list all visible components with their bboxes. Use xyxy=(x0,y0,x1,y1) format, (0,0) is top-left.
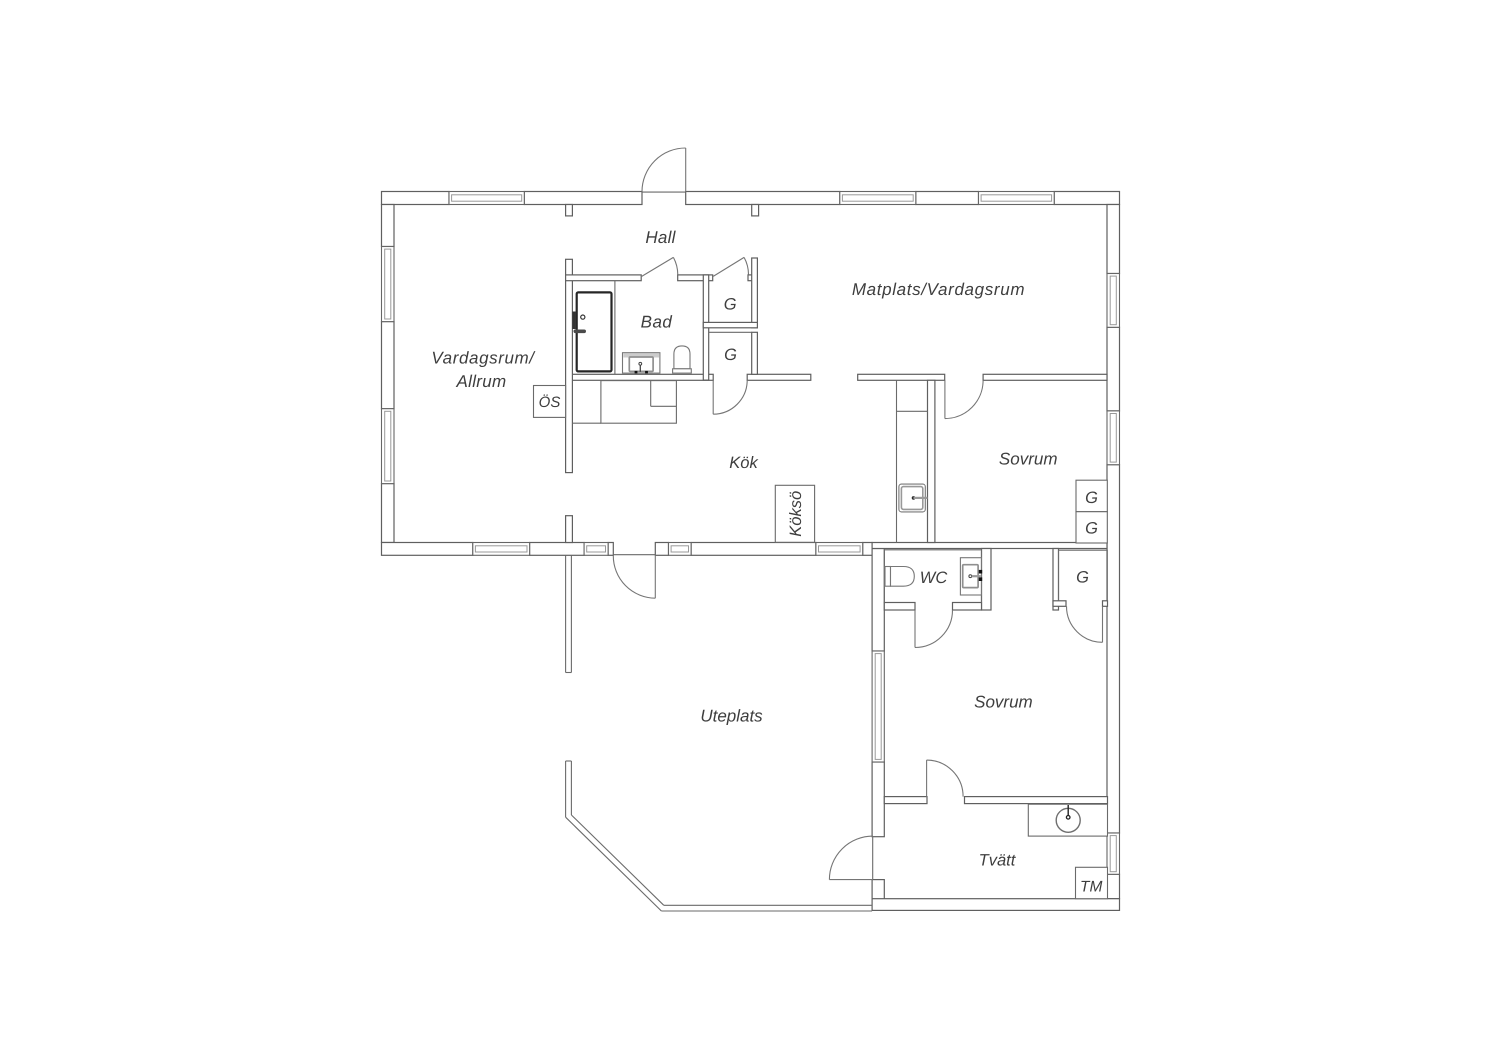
svg-text:G: G xyxy=(724,296,737,314)
svg-text:G: G xyxy=(724,346,737,364)
svg-text:Köksö: Köksö xyxy=(787,491,805,537)
svg-text:Allrum: Allrum xyxy=(456,372,507,391)
svg-text:Sovrum: Sovrum xyxy=(974,692,1033,711)
svg-text:Matplats/Vardagsrum: Matplats/Vardagsrum xyxy=(852,280,1025,299)
svg-text:Tvätt: Tvätt xyxy=(979,852,1017,870)
svg-text:Bad: Bad xyxy=(641,313,673,332)
svg-text:Kök: Kök xyxy=(729,454,758,472)
svg-text:G: G xyxy=(1085,520,1098,538)
svg-text:TM: TM xyxy=(1080,878,1102,895)
svg-text:G: G xyxy=(1076,568,1089,586)
svg-text:Vardagsrum/: Vardagsrum/ xyxy=(431,349,536,368)
svg-text:Sovrum: Sovrum xyxy=(999,450,1058,469)
svg-text:Hall: Hall xyxy=(645,228,676,247)
svg-text:ÖS: ÖS xyxy=(539,394,561,411)
svg-text:WC: WC xyxy=(920,569,948,587)
svg-text:Uteplats: Uteplats xyxy=(700,707,763,726)
svg-text:G: G xyxy=(1085,489,1098,507)
